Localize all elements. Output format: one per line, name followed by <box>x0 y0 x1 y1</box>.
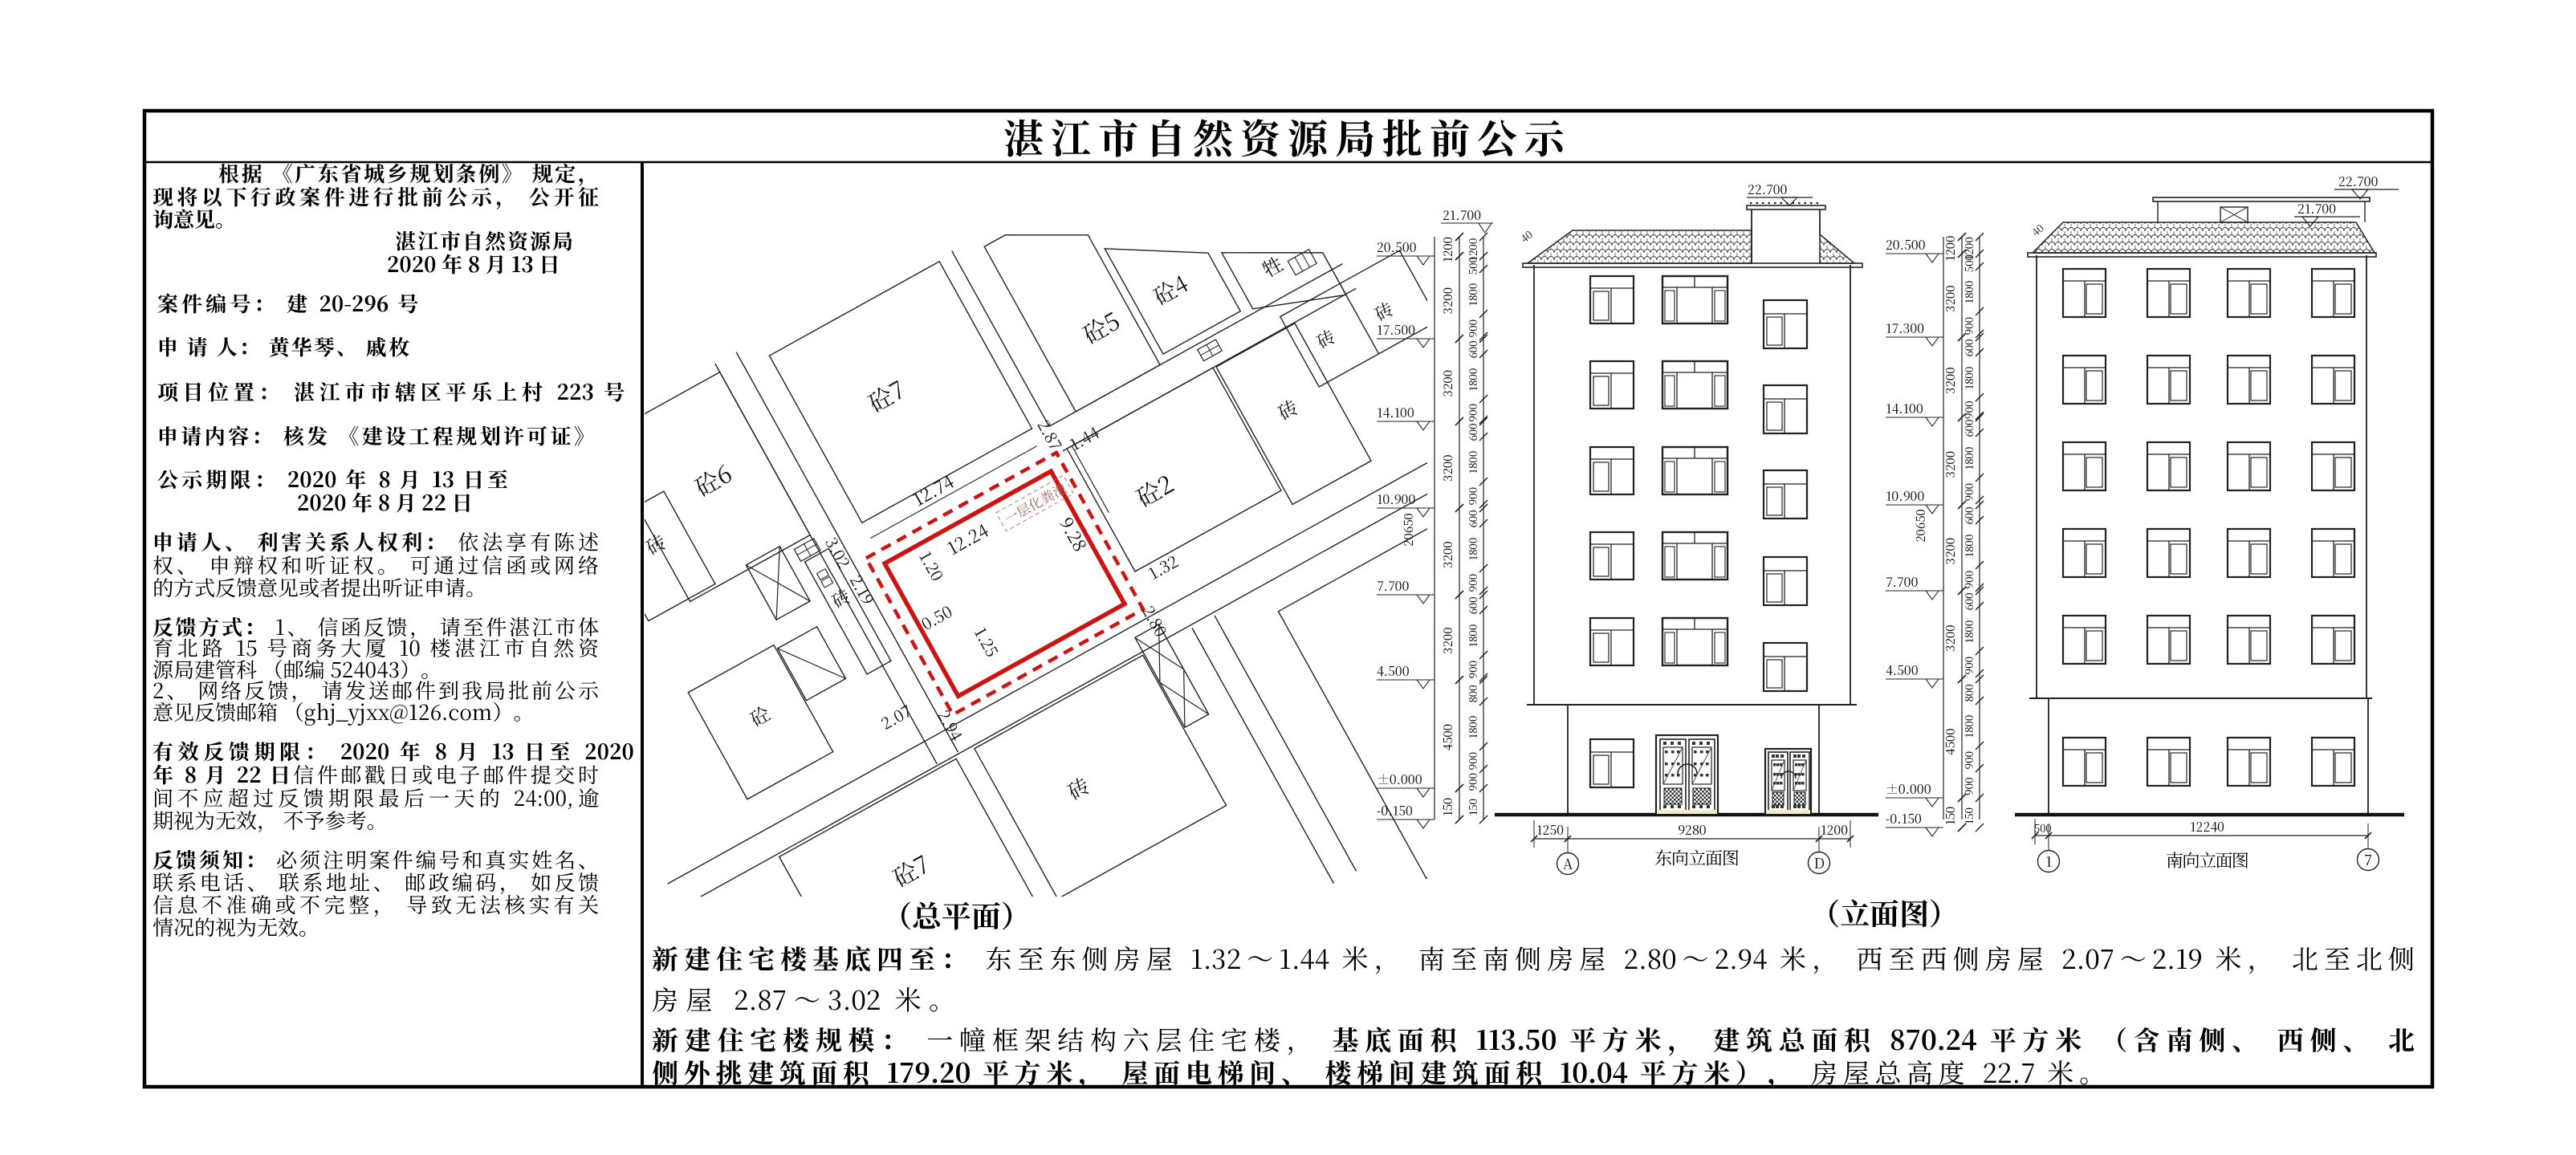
svg-text:900: 900 <box>1960 483 1976 502</box>
svg-text:砖: 砖 <box>640 527 670 560</box>
svg-text:3200: 3200 <box>1942 537 1959 564</box>
svg-text:20.500: 20.500 <box>1377 238 1417 256</box>
svg-text:14.100: 14.100 <box>1886 399 1923 417</box>
svg-text:砖: 砖 <box>1272 392 1302 425</box>
svg-text:3.02: 3.02 <box>820 533 857 572</box>
svg-text:-0.150: -0.150 <box>1377 801 1413 819</box>
svg-text:900: 900 <box>1960 657 1976 675</box>
svg-text:砖: 砖 <box>1062 770 1095 806</box>
svg-text:1200: 1200 <box>1821 820 1848 839</box>
svg-text:900: 900 <box>1464 661 1480 679</box>
svg-text:21.700: 21.700 <box>2297 199 2336 218</box>
svg-text:1200: 1200 <box>1439 236 1456 262</box>
svg-text:500: 500 <box>1960 254 1976 273</box>
svg-text:D: D <box>1813 852 1825 873</box>
svg-text:22.700: 22.700 <box>2338 172 2379 190</box>
svg-text:20650: 20650 <box>1400 512 1417 546</box>
svg-text:1800: 1800 <box>1464 716 1480 739</box>
svg-text:1800: 1800 <box>1960 715 1976 738</box>
svg-text:900: 900 <box>1960 401 1976 419</box>
svg-text:14.100: 14.100 <box>1377 403 1414 421</box>
svg-text:一层化粪池: 一层化粪池 <box>1000 478 1069 528</box>
svg-text:150: 150 <box>1439 797 1456 816</box>
svg-text:600: 600 <box>1960 339 1976 357</box>
svg-text:±0.000: ±0.000 <box>1377 770 1422 788</box>
svg-text:9280: 9280 <box>1678 820 1707 839</box>
svg-text:砼7: 砼7 <box>885 845 935 894</box>
svg-text:2.94: 2.94 <box>933 706 969 746</box>
svg-text:3200: 3200 <box>1942 624 1959 652</box>
svg-text:砼5: 砼5 <box>1076 302 1125 351</box>
svg-text:3200: 3200 <box>1439 369 1456 397</box>
svg-text:12.74: 12.74 <box>908 469 958 511</box>
svg-text:600: 600 <box>1960 419 1976 437</box>
svg-text:600: 600 <box>1464 423 1480 441</box>
svg-text:500: 500 <box>2034 820 2052 836</box>
svg-text:900: 900 <box>1960 317 1976 336</box>
svg-text:1800: 1800 <box>1960 367 1976 390</box>
svg-text:150: 150 <box>1942 806 1959 825</box>
svg-text:12240: 12240 <box>2190 817 2224 836</box>
svg-text:3200: 3200 <box>1439 287 1456 314</box>
svg-text:牲: 牲 <box>1257 249 1288 283</box>
svg-text:9.28: 9.28 <box>1054 513 1093 556</box>
svg-text:40: 40 <box>1517 226 1536 246</box>
svg-text:±0.000: ±0.000 <box>1886 779 1931 798</box>
svg-text:2.87: 2.87 <box>1032 415 1068 454</box>
svg-text:3200: 3200 <box>1439 627 1456 654</box>
svg-text:7: 7 <box>2364 849 2372 870</box>
svg-text:900: 900 <box>1464 487 1480 506</box>
svg-text:东向立面图: 东向立面图 <box>1654 845 1740 870</box>
svg-text:17.500: 17.500 <box>1377 320 1415 339</box>
svg-text:4500: 4500 <box>1942 728 1959 755</box>
svg-text:南向立面图: 南向立面图 <box>2166 848 2249 872</box>
svg-text:3200: 3200 <box>1942 285 1959 312</box>
svg-text:150: 150 <box>1464 799 1480 815</box>
svg-text:4.500: 4.500 <box>1377 661 1410 680</box>
svg-text:砼4: 砼4 <box>1147 267 1193 312</box>
svg-text:3200: 3200 <box>1439 541 1456 568</box>
svg-text:3200: 3200 <box>1439 454 1456 482</box>
svg-text:7.700: 7.700 <box>1886 572 1919 591</box>
svg-text:20.500: 20.500 <box>1886 235 1926 254</box>
svg-text:1.32: 1.32 <box>1144 549 1182 584</box>
svg-text:2.07: 2.07 <box>877 698 916 734</box>
svg-text:12.24: 12.24 <box>942 518 993 560</box>
svg-text:10.900: 10.900 <box>1377 490 1416 508</box>
svg-text:22.700: 22.700 <box>1748 180 1788 198</box>
svg-text:500: 500 <box>1464 257 1480 275</box>
svg-text:1800: 1800 <box>1960 281 1976 304</box>
svg-text:900: 900 <box>1464 752 1480 771</box>
svg-text:1800: 1800 <box>1960 447 1976 470</box>
svg-text:A: A <box>1563 853 1573 874</box>
svg-text:4.500: 4.500 <box>1886 661 1919 679</box>
svg-text:40: 40 <box>2028 220 2046 239</box>
svg-text:3200: 3200 <box>1942 367 1959 394</box>
svg-text:砼2: 砼2 <box>1129 465 1179 514</box>
svg-text:900: 900 <box>1464 773 1480 791</box>
svg-text:1.20: 1.20 <box>914 547 950 585</box>
svg-text:4500: 4500 <box>1439 723 1456 750</box>
svg-text:砼7: 砼7 <box>861 370 911 419</box>
svg-text:800: 800 <box>1960 684 1976 702</box>
svg-text:600: 600 <box>1464 510 1480 528</box>
svg-text:600: 600 <box>1960 592 1976 611</box>
svg-text:150: 150 <box>1960 807 1976 824</box>
svg-text:900: 900 <box>1960 571 1976 589</box>
svg-text:800: 800 <box>1464 685 1480 703</box>
svg-text:3200: 3200 <box>1942 450 1959 478</box>
svg-text:1800: 1800 <box>1960 620 1976 644</box>
svg-text:砼6: 砼6 <box>687 454 737 503</box>
svg-text:600: 600 <box>1464 596 1480 615</box>
svg-text:1800: 1800 <box>1960 535 1976 558</box>
svg-text:900: 900 <box>1464 319 1480 338</box>
svg-text:砼: 砼 <box>744 698 775 732</box>
svg-text:1: 1 <box>2045 851 2052 872</box>
svg-text:900: 900 <box>1960 751 1976 770</box>
svg-text:1800: 1800 <box>1464 451 1480 474</box>
svg-text:1.44: 1.44 <box>1065 420 1104 455</box>
svg-text:1250: 1250 <box>1536 820 1564 839</box>
svg-text:10.900: 10.900 <box>1886 486 1925 505</box>
svg-text:1.25: 1.25 <box>970 623 1005 661</box>
svg-text:1800: 1800 <box>1464 538 1480 561</box>
svg-text:1800: 1800 <box>1464 368 1480 392</box>
svg-text:1200: 1200 <box>1942 235 1959 262</box>
svg-text:900: 900 <box>1464 404 1480 422</box>
svg-text:600: 600 <box>1464 340 1480 359</box>
svg-text:-0.150: -0.150 <box>1886 809 1922 828</box>
svg-text:1800: 1800 <box>1464 624 1480 648</box>
svg-text:砖: 砖 <box>1312 323 1339 354</box>
svg-text:900: 900 <box>1464 574 1480 592</box>
svg-text:1800: 1800 <box>1464 283 1480 307</box>
svg-text:7.700: 7.700 <box>1377 576 1410 595</box>
svg-text:600: 600 <box>1960 506 1976 525</box>
svg-text:21.700: 21.700 <box>1443 205 1481 224</box>
svg-text:900: 900 <box>1960 777 1976 795</box>
svg-text:20650: 20650 <box>1912 508 1929 542</box>
svg-text:17.300: 17.300 <box>1886 319 1924 337</box>
